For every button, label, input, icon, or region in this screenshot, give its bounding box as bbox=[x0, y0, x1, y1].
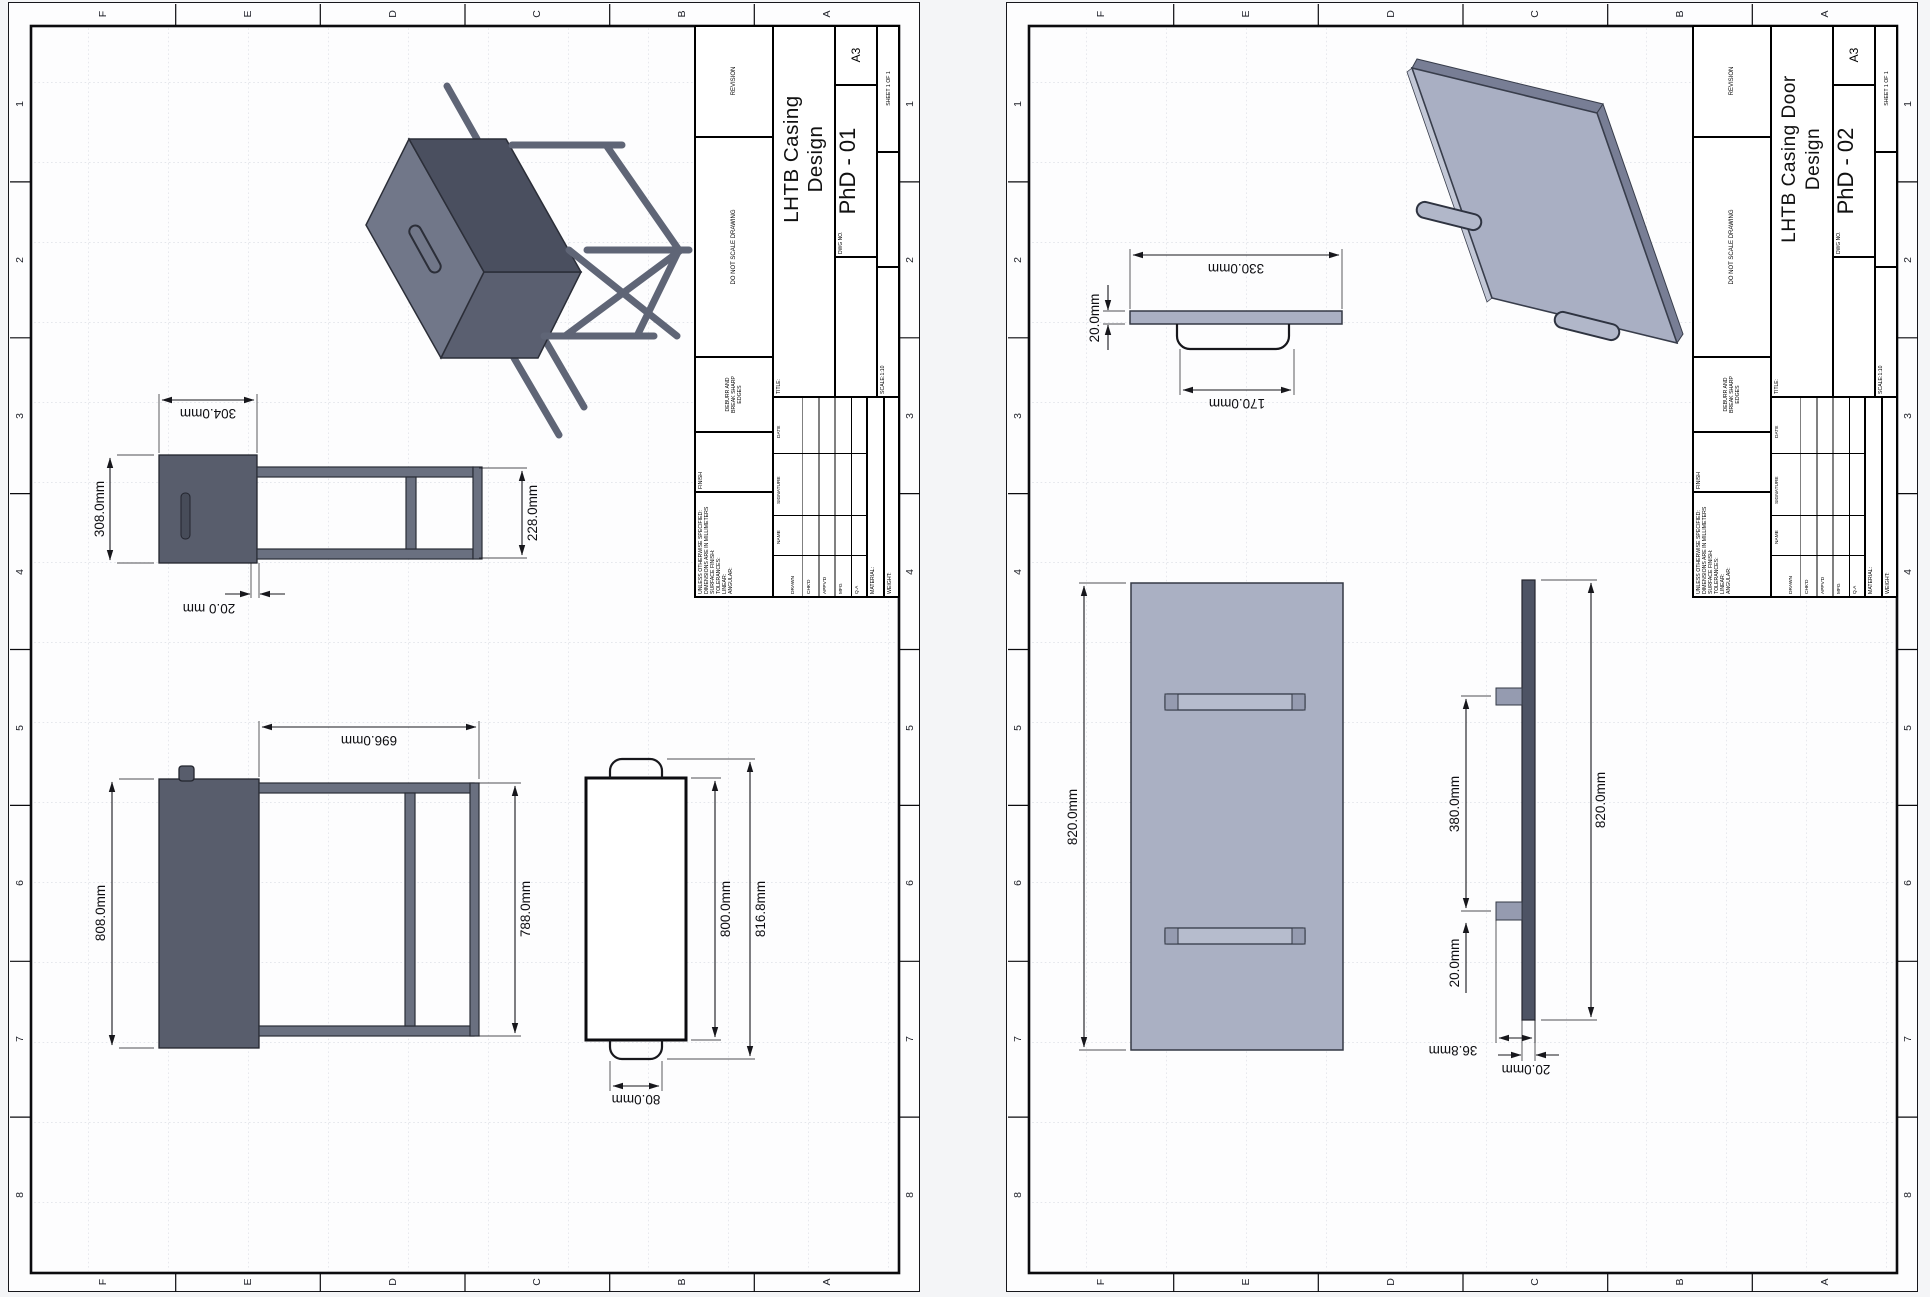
zone-letter: A bbox=[820, 7, 834, 21]
zone-letter: B bbox=[675, 1275, 689, 1289]
zone-letter: F bbox=[96, 1275, 110, 1289]
dim-330: 330.0mm bbox=[1208, 261, 1264, 276]
zone-number: 2 bbox=[1011, 253, 1025, 267]
title-cell: TITLE: LHTB CasingDesign bbox=[773, 25, 835, 397]
zone-letter: C bbox=[1528, 7, 1542, 21]
dim-308: 308.0mm bbox=[92, 481, 107, 537]
scale-cell: SCALE:1:10 bbox=[1875, 267, 1898, 397]
zone-letter: C bbox=[1528, 1275, 1542, 1289]
zone-letter: D bbox=[386, 7, 400, 21]
zone-number: 8 bbox=[1901, 1188, 1915, 1202]
revision-cell: REVISION bbox=[1693, 25, 1771, 137]
dim-170: 170.0mm bbox=[1209, 396, 1265, 411]
deburr-cell: DEBURR ANDBREAK SHARPEDGES bbox=[695, 357, 773, 432]
scale-cell: SCALE:1:10 bbox=[877, 267, 900, 397]
zone-number: 7 bbox=[1901, 1032, 1915, 1046]
dim-304: 304.0mm bbox=[180, 406, 236, 421]
dim-820-side: 820.0mm bbox=[1593, 772, 1608, 828]
dwg-spacer bbox=[1833, 257, 1875, 397]
zone-letter: D bbox=[1384, 1275, 1398, 1289]
dim-788: 788.0mm bbox=[518, 881, 533, 937]
zone-letter: C bbox=[530, 1275, 544, 1289]
paper-size-cell: A3 bbox=[835, 25, 877, 85]
zone-number: 2 bbox=[1901, 253, 1915, 267]
dim-80: 80.0mm bbox=[612, 1092, 661, 1107]
do-not-scale-cell: DO NOT SCALE DRAWING bbox=[695, 137, 773, 357]
weight-cell: WEIGHT: bbox=[1882, 397, 1898, 597]
dim-20-thickness: 20.0mm bbox=[1087, 294, 1102, 343]
zone-number: 1 bbox=[1901, 97, 1915, 111]
cad-drawings-page: 308.0mm 304.0mm 20.0 mm 228.0mm bbox=[0, 0, 1930, 1297]
dwg-spacer bbox=[835, 257, 877, 397]
finish-cell: FINISH bbox=[1693, 432, 1771, 492]
zone-letter: A bbox=[1818, 7, 1832, 21]
zone-number: 8 bbox=[13, 1188, 27, 1202]
zone-number: 6 bbox=[1901, 876, 1915, 890]
sheet-1-casing: 308.0mm 304.0mm 20.0 mm 228.0mm bbox=[8, 2, 920, 1292]
title-cell: TITLE: LHTB Casing DoorDesign bbox=[1771, 25, 1833, 397]
do-not-scale-cell: DO NOT SCALE DRAWING bbox=[1693, 137, 1771, 357]
zone-number: 4 bbox=[13, 565, 27, 579]
zone-letter: E bbox=[241, 1275, 255, 1289]
dim-380: 380.0mm bbox=[1447, 776, 1462, 832]
zone-number: 2 bbox=[903, 253, 917, 267]
dim-696: 696.0mm bbox=[341, 733, 397, 748]
zone-letter: F bbox=[1094, 1275, 1108, 1289]
zone-number: 4 bbox=[903, 565, 917, 579]
dim-816: 816.8mm bbox=[753, 881, 768, 937]
zone-number: 3 bbox=[903, 409, 917, 423]
sheet-cell: SHEET 1 OF 1 bbox=[877, 25, 900, 152]
zone-letter: E bbox=[1239, 7, 1253, 21]
dim-800: 800.0mm bbox=[718, 881, 733, 937]
material-cell: MATERIAL: bbox=[867, 397, 884, 597]
zone-number: 2 bbox=[13, 253, 27, 267]
zone-number: 5 bbox=[903, 721, 917, 735]
zone-number: 3 bbox=[1011, 409, 1025, 423]
zone-number: 6 bbox=[13, 876, 27, 890]
zone-number: 5 bbox=[1901, 721, 1915, 735]
dim-20-door-thickness: 20.0mm bbox=[1502, 1062, 1551, 1077]
zone-number: 5 bbox=[13, 721, 27, 735]
weight2-cell bbox=[1875, 152, 1898, 267]
drawing-title: LHTB CasingDesign bbox=[780, 26, 828, 396]
zone-number: 4 bbox=[1011, 565, 1025, 579]
weight-cell: WEIGHT: bbox=[884, 397, 900, 597]
title-block-sheet2: UNLESS OTHERWISE SPECIFIED:DIMENSIONS AR… bbox=[1692, 26, 1897, 598]
zone-number: 6 bbox=[1011, 876, 1025, 890]
revision-cell: REVISION bbox=[695, 25, 773, 137]
dwg-no-cell: DWG NO. PhD - 02 bbox=[1833, 85, 1875, 257]
zone-number: 1 bbox=[903, 97, 917, 111]
zone-number: 7 bbox=[13, 1032, 27, 1046]
zone-number: 4 bbox=[1901, 565, 1915, 579]
tolerance-note: UNLESS OTHERWISE SPECIFIED:DIMENSIONS AR… bbox=[1693, 492, 1771, 597]
zone-letter: B bbox=[1673, 7, 1687, 21]
weight2-cell bbox=[877, 152, 900, 267]
zone-number: 3 bbox=[13, 409, 27, 423]
zone-number: 6 bbox=[903, 876, 917, 890]
zone-letter: F bbox=[1094, 7, 1108, 21]
dim-228: 228.0mm bbox=[525, 485, 540, 541]
zone-number: 7 bbox=[1011, 1032, 1025, 1046]
tolerance-note: UNLESS OTHERWISE SPECIFIED:DIMENSIONS AR… bbox=[695, 492, 773, 597]
zone-letter: C bbox=[530, 7, 544, 21]
finish-cell: FINISH bbox=[695, 432, 773, 492]
title-block-sheet1: UNLESS OTHERWISE SPECIFIED:DIMENSIONS AR… bbox=[694, 26, 899, 598]
zone-letter: B bbox=[675, 7, 689, 21]
zone-letter: A bbox=[1818, 1275, 1832, 1289]
dim-36-8: 36.8mm bbox=[1429, 1043, 1478, 1058]
drawing-number: PhD - 01 bbox=[845, 86, 851, 256]
material-cell: MATERIAL: bbox=[1865, 397, 1882, 597]
dim-820-front: 820.0mm bbox=[1065, 789, 1080, 845]
sheet-2-casing-door: 330.0mm 170.0mm 20.0mm bbox=[1006, 2, 1918, 1292]
paper-size-cell: A3 bbox=[1833, 25, 1875, 85]
deburr-cell: DEBURR ANDBREAK SHARPEDGES bbox=[1693, 357, 1771, 432]
signature-table: NAME SIGNATURE DATE DRAWN CHK'D APPV'D M… bbox=[773, 397, 867, 597]
dim-20-handle-offset: 20.0mm bbox=[1447, 939, 1462, 988]
zone-number: 3 bbox=[1901, 409, 1915, 423]
dim-808: 808.0mm bbox=[93, 885, 108, 941]
zone-letter: D bbox=[1384, 7, 1398, 21]
dim-20mm: 20.0 mm bbox=[183, 601, 236, 616]
zone-number: 1 bbox=[13, 97, 27, 111]
signature-table: NAME SIGNATURE DATE DRAWN CHK'D APPV'D M… bbox=[1771, 397, 1865, 597]
sheet-cell: SHEET 1 OF 1 bbox=[1875, 25, 1898, 152]
zone-number: 5 bbox=[1011, 721, 1025, 735]
drawing-number: PhD - 02 bbox=[1843, 86, 1849, 256]
zone-letter: B bbox=[1673, 1275, 1687, 1289]
zone-letter: E bbox=[241, 7, 255, 21]
drawing-title: LHTB Casing DoorDesign bbox=[1778, 26, 1826, 396]
zone-number: 1 bbox=[1011, 97, 1025, 111]
zone-number: 8 bbox=[1011, 1188, 1025, 1202]
zone-letter: A bbox=[820, 1275, 834, 1289]
zone-number: 7 bbox=[903, 1032, 917, 1046]
zone-letter: E bbox=[1239, 1275, 1253, 1289]
dwg-no-cell: DWG NO. PhD - 01 bbox=[835, 85, 877, 257]
zone-letter: D bbox=[386, 1275, 400, 1289]
zone-letter: F bbox=[96, 7, 110, 21]
zone-number: 8 bbox=[903, 1188, 917, 1202]
